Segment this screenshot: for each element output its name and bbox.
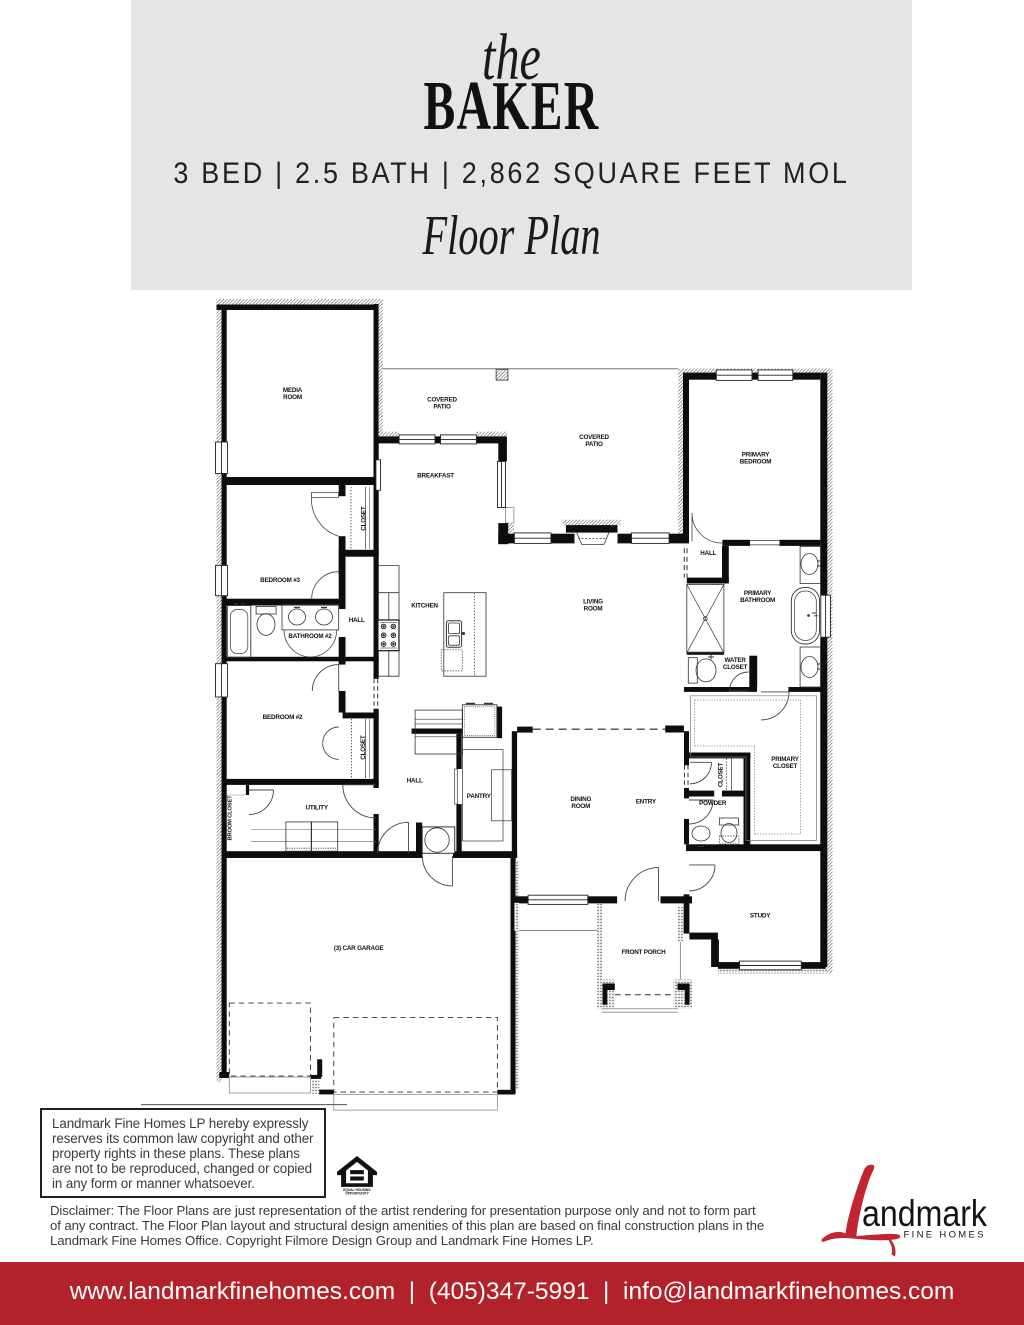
svg-text:CLOSET: CLOSET <box>773 763 798 770</box>
svg-text:POWDER: POWDER <box>699 800 727 807</box>
svg-text:ROOM: ROOM <box>283 394 302 401</box>
svg-text:CLOSET: CLOSET <box>360 735 367 760</box>
svg-text:HALL: HALL <box>407 778 423 785</box>
svg-text:(3) CAR GARAGE: (3) CAR GARAGE <box>334 945 384 952</box>
svg-text:BROOM CLOSET: BROOM CLOSET <box>227 795 233 841</box>
svg-text:BEDROOM #3: BEDROOM #3 <box>260 577 300 584</box>
svg-text:PATIO: PATIO <box>433 403 451 410</box>
svg-text:CLOSET: CLOSET <box>723 664 748 671</box>
svg-text:HALL: HALL <box>349 617 365 624</box>
svg-text:CLOSET: CLOSET <box>361 506 368 531</box>
svg-text:HALL: HALL <box>700 550 716 557</box>
svg-text:ROOM: ROOM <box>571 803 590 810</box>
svg-text:BREAKFAST: BREAKFAST <box>417 473 454 480</box>
svg-text:BATHROOM: BATHROOM <box>740 597 775 604</box>
svg-text:STUDY: STUDY <box>750 913 771 920</box>
svg-text:BEDROOM: BEDROOM <box>740 458 771 465</box>
svg-text:PATIO: PATIO <box>585 441 603 448</box>
svg-text:CLOSET: CLOSET <box>718 762 725 787</box>
svg-text:KITCHEN: KITCHEN <box>411 603 438 610</box>
svg-text:ROOM: ROOM <box>584 605 603 612</box>
svg-text:andmark: andmark <box>862 1193 987 1234</box>
svg-text:BEDROOM #2: BEDROOM #2 <box>263 714 303 721</box>
svg-text:PANTRY: PANTRY <box>467 793 492 800</box>
svg-text:BATHROOM #2: BATHROOM #2 <box>288 633 332 640</box>
svg-text:FRONT PORCH: FRONT PORCH <box>622 949 667 956</box>
svg-text:ENTRY: ENTRY <box>636 799 657 806</box>
svg-text:OPPORTUNITY: OPPORTUNITY <box>345 1192 369 1196</box>
svg-text:UTILITY: UTILITY <box>306 805 329 812</box>
